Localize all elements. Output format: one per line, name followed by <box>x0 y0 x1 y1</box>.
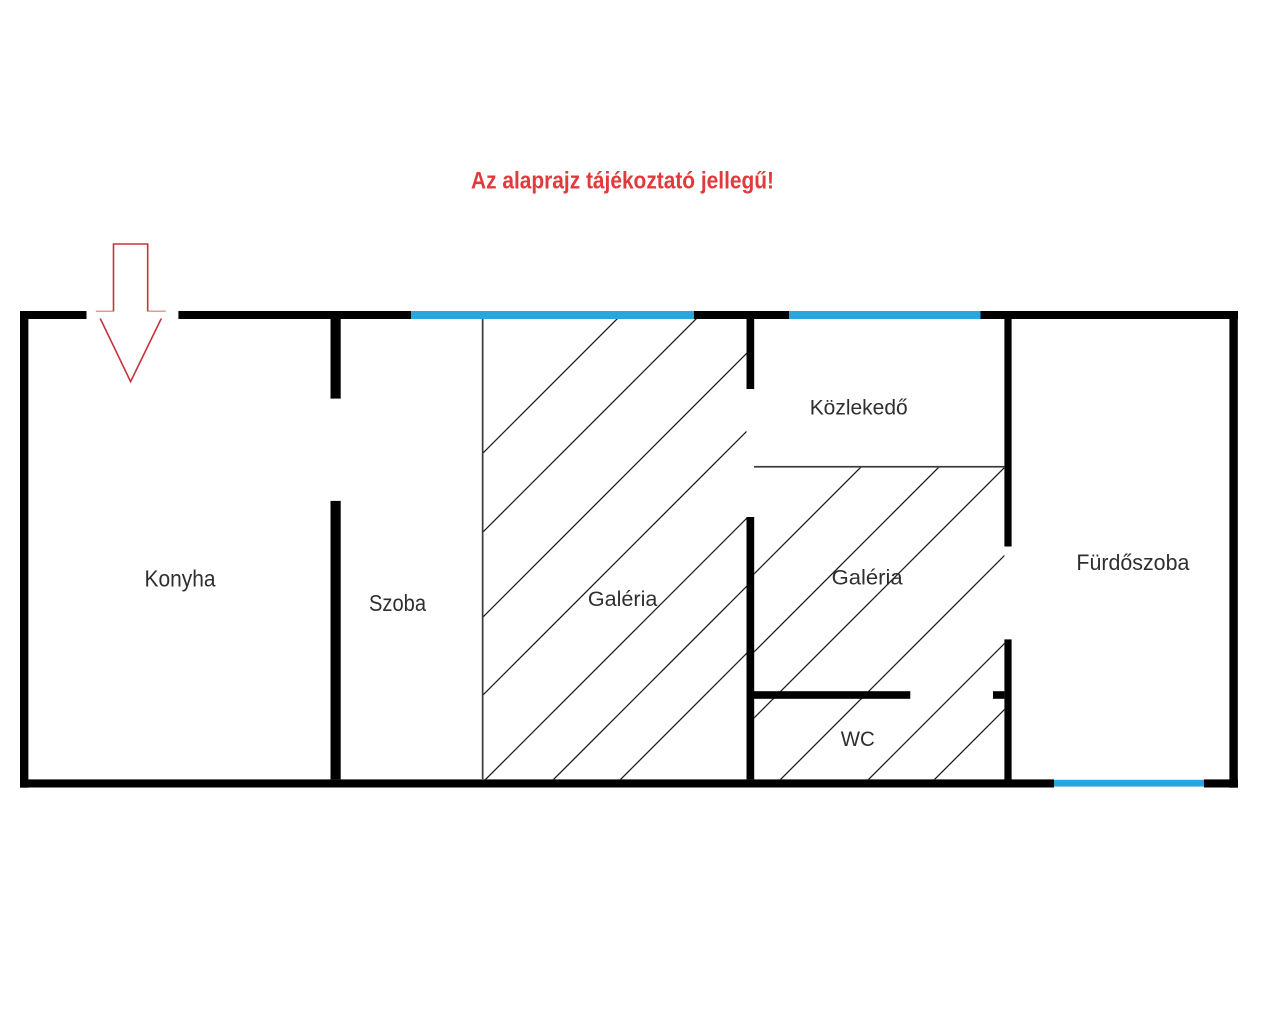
svg-text:Fürdőszoba: Fürdőszoba <box>1076 550 1190 575</box>
svg-text:WC: WC <box>841 728 875 751</box>
svg-text:Szoba: Szoba <box>369 590 426 616</box>
svg-text:Konyha: Konyha <box>145 565 216 591</box>
svg-text:Galéria: Galéria <box>832 567 903 590</box>
svg-text:Közlekedő: Közlekedő <box>810 397 908 420</box>
svg-text:Galéria: Galéria <box>588 588 658 611</box>
svg-text:Az alaprajz tájékoztató jelleg: Az alaprajz tájékoztató jellegű! <box>471 168 774 195</box>
